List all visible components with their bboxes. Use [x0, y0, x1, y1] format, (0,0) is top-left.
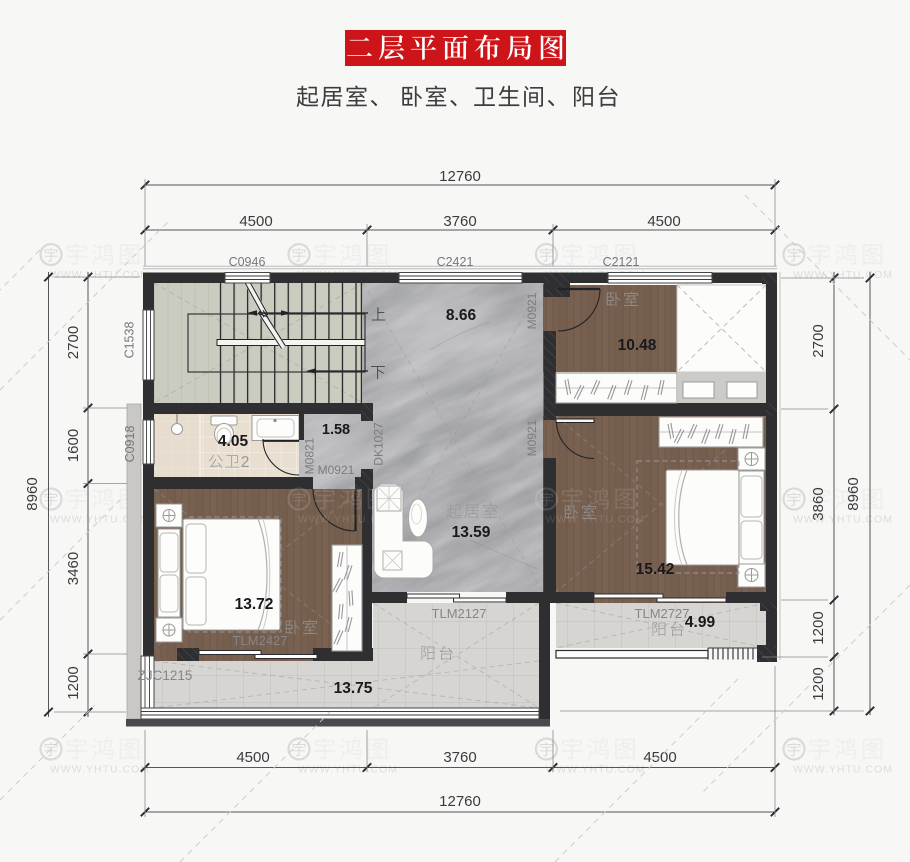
svg-text:4500: 4500 [647, 213, 680, 230]
svg-text:4500: 4500 [236, 749, 269, 766]
svg-text:WWW.YHTU.COM: WWW.YHTU.COM [793, 764, 893, 776]
svg-text:2700: 2700 [65, 326, 82, 359]
svg-text:12760: 12760 [439, 168, 481, 185]
svg-text:3760: 3760 [443, 749, 476, 766]
svg-text:WWW.YHTU.COM: WWW.YHTU.COM [793, 269, 893, 281]
svg-text:M0821: M0821 [303, 437, 317, 474]
svg-text:C2421: C2421 [437, 255, 474, 269]
svg-text:WWW.YHTU.COM: WWW.YHTU.COM [545, 514, 645, 526]
svg-text:M0921: M0921 [525, 419, 539, 456]
svg-text:DK1027: DK1027 [372, 422, 386, 466]
svg-text:TLM2127: TLM2127 [432, 606, 487, 621]
svg-text:8960: 8960 [845, 477, 862, 510]
svg-text:M0921: M0921 [318, 463, 355, 477]
svg-text:10.48: 10.48 [618, 337, 657, 354]
svg-text:M0921: M0921 [525, 292, 539, 329]
svg-text:13.75: 13.75 [334, 680, 373, 697]
svg-text:4.05: 4.05 [218, 433, 249, 450]
svg-text:C1538: C1538 [123, 322, 137, 359]
svg-text:C2121: C2121 [603, 255, 640, 269]
svg-text:WWW.YHTU.COM: WWW.YHTU.COM [793, 514, 893, 526]
svg-text:15.42: 15.42 [636, 561, 675, 578]
svg-text:C0946: C0946 [229, 255, 266, 269]
svg-text:1200: 1200 [810, 667, 827, 700]
svg-text:4500: 4500 [239, 213, 272, 230]
svg-text:3760: 3760 [443, 213, 476, 230]
svg-text:TLM2427: TLM2427 [233, 633, 288, 648]
svg-text:3860: 3860 [810, 487, 827, 520]
svg-text:WWW.YHTU.COM: WWW.YHTU.COM [298, 514, 398, 526]
svg-text:1.58: 1.58 [322, 422, 350, 438]
svg-text:13.72: 13.72 [235, 596, 274, 613]
svg-text:8960: 8960 [24, 477, 41, 510]
svg-text:WWW.YHTU.COM: WWW.YHTU.COM [50, 269, 150, 281]
svg-text:1200: 1200 [810, 611, 827, 644]
svg-text:1200: 1200 [65, 666, 82, 699]
svg-text:WWW.YHTU.COM: WWW.YHTU.COM [50, 764, 150, 776]
svg-text:C0918: C0918 [123, 426, 137, 463]
svg-text:WWW.YHTU.COM: WWW.YHTU.COM [545, 764, 645, 776]
svg-text:13.59: 13.59 [452, 524, 491, 541]
svg-text:2: 2 [241, 454, 250, 471]
svg-text:1600: 1600 [65, 429, 82, 462]
svg-text:ZJC1215: ZJC1215 [138, 668, 193, 683]
svg-text:12760: 12760 [439, 793, 481, 810]
svg-text:WWW.YHTU.COM: WWW.YHTU.COM [298, 764, 398, 776]
svg-text:8.66: 8.66 [446, 307, 477, 324]
svg-text:2700: 2700 [810, 324, 827, 357]
svg-text:3460: 3460 [65, 552, 82, 585]
svg-text:4.99: 4.99 [685, 614, 716, 631]
svg-text:TLM2727: TLM2727 [635, 606, 690, 621]
